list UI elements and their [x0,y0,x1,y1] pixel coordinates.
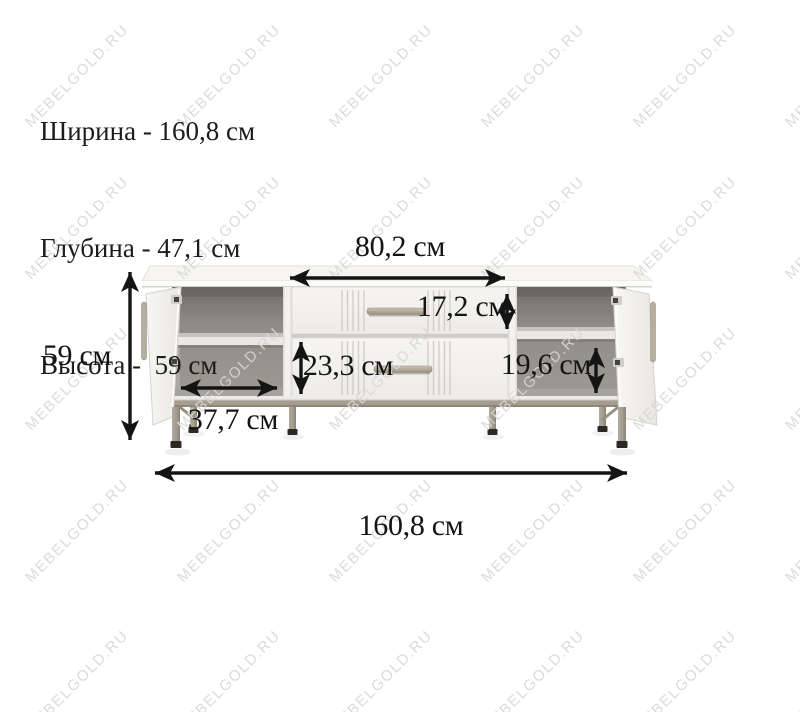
spec-line-depth: Глубина - 47,1 см [40,229,255,268]
spec-text-block: Ширина - 160,8 см Глубина - 47,1 см Высо… [40,34,255,463]
spec-line-width: Ширина - 160,8 см [40,112,255,151]
dim-label-top-drawer-height: 17,2 см [417,290,507,324]
dim-label-drawer-section-width: 80,2 см [355,230,445,264]
dim-label-bottom-drawer-height: 23,3 см [303,349,393,383]
dim-label-overall-height: 59 см [43,339,111,373]
dim-label-overall-width: 160,8 см [359,509,464,543]
product-dimensions-image: MEBELGOLD.RUMEBELGOLD.RUMEBELGOLD.RUMEBE… [0,0,800,712]
dim-label-right-shelf-height: 19,6 см [501,348,591,382]
dim-label-left-compartment-width: 37,7 см [188,403,278,437]
